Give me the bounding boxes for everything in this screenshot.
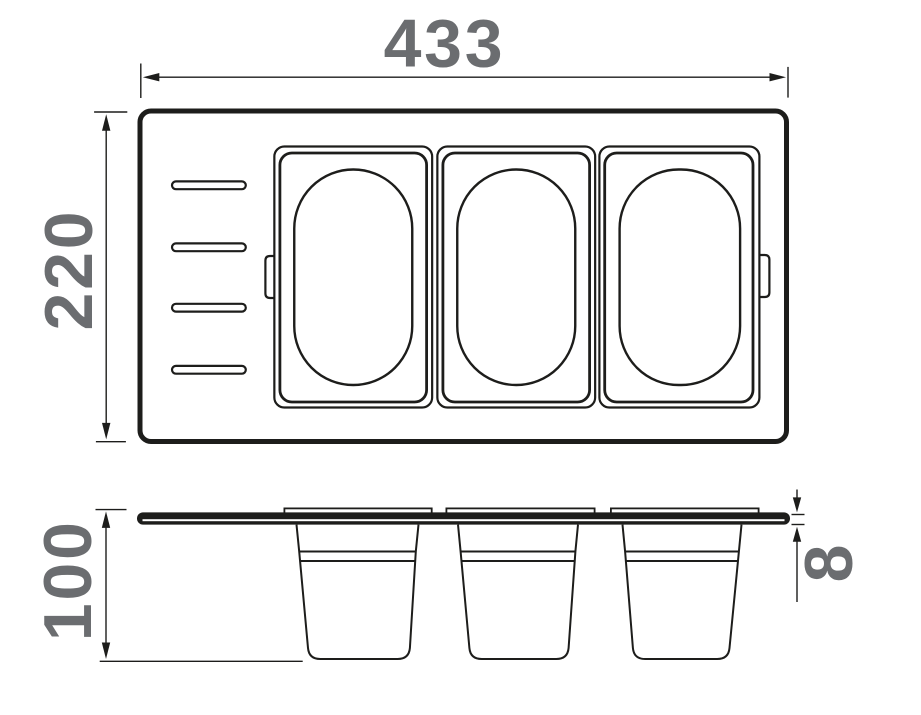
svg-text:100: 100 — [30, 519, 106, 641]
svg-text:220: 220 — [31, 209, 107, 331]
svg-text:8: 8 — [791, 545, 867, 583]
svg-text:433: 433 — [384, 5, 506, 81]
